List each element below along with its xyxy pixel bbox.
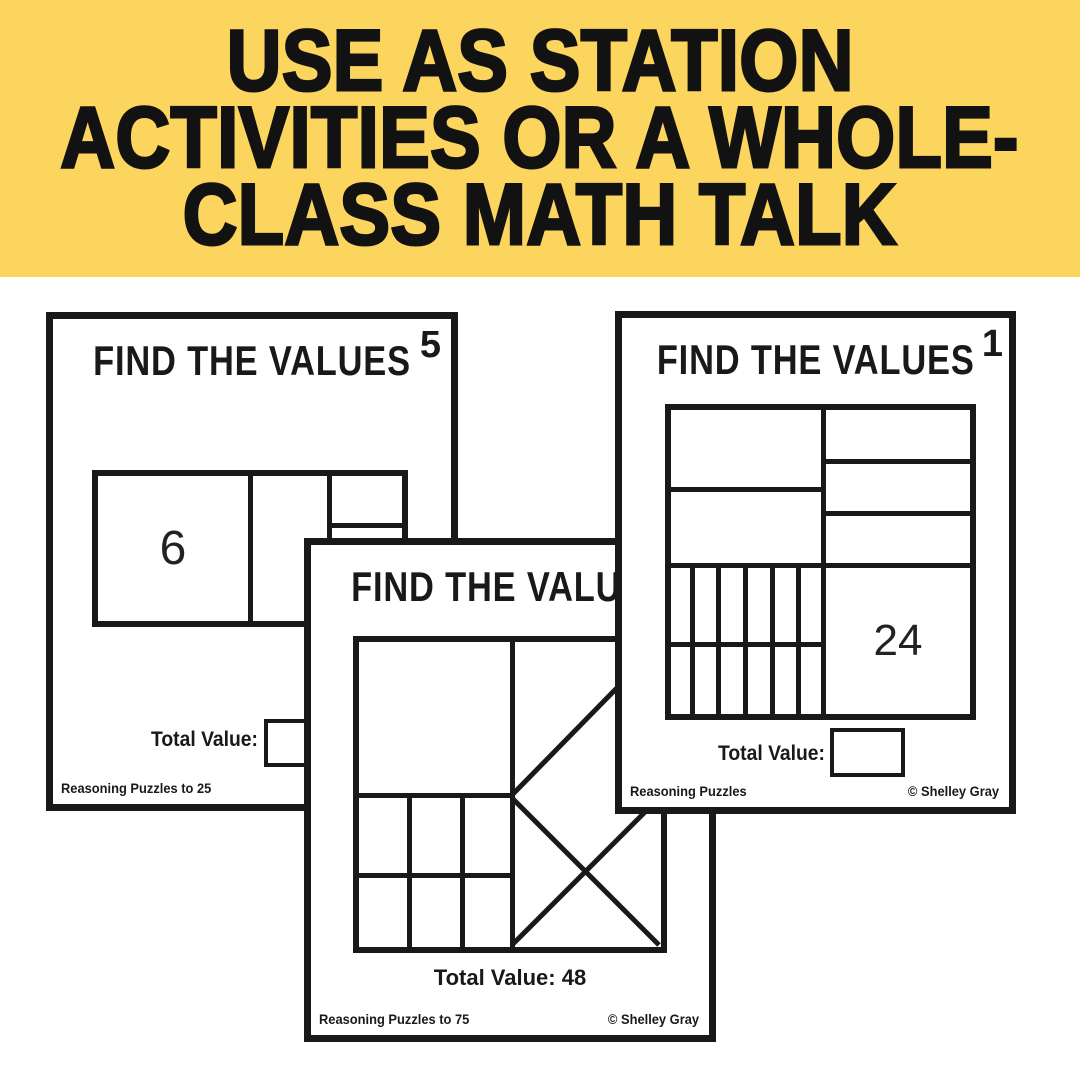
puzzle-line (690, 563, 695, 714)
banner-line-2: ACTIVITIES OR A WHOLE- (61, 100, 1019, 177)
puzzle-line (770, 563, 775, 714)
puzzle-line (821, 511, 970, 516)
footer-series: Reasoning Puzzles to 75 (319, 1011, 469, 1027)
total-value-label: Total Value: (69, 728, 258, 752)
puzzle-line (821, 459, 970, 464)
footer-copyright: © Shelley Gray (608, 1011, 699, 1027)
card-title: FIND THE VALUES (657, 336, 974, 384)
puzzle-line (716, 563, 721, 714)
footer-series: Reasoning Puzzles to 25 (61, 780, 211, 796)
card-number-badge: 1 (982, 323, 1003, 366)
puzzle-line (671, 487, 826, 492)
card-title: FIND THE VALUES (89, 337, 415, 385)
total-value-label: Total Value: (638, 742, 825, 766)
headline-banner: USE AS STATION ACTIVITIES OR A WHOLE- CL… (0, 0, 1080, 277)
puzzle-line (248, 476, 253, 621)
footer-copyright: © Shelley Gray (908, 783, 999, 799)
puzzle-card-1: FIND THE VALUES 1 24 Total Value: Reas (615, 311, 1016, 814)
puzzle-shape: 24 (665, 404, 976, 720)
puzzle-line (327, 523, 402, 528)
puzzle-line (796, 563, 801, 714)
total-value-label: Total Value: 48 (311, 965, 709, 991)
promo-graphic: USE AS STATION ACTIVITIES OR A WHOLE- CL… (0, 0, 1080, 1080)
puzzle-line (671, 642, 826, 647)
footer-series: Reasoning Puzzles (630, 783, 747, 799)
card-number-badge: 5 (420, 324, 441, 367)
banner-line-1: USE AS STATION (226, 23, 853, 100)
banner-line-3: CLASS MATH TALK (183, 177, 897, 254)
total-value-box (830, 728, 905, 777)
puzzle-line (743, 563, 748, 714)
cell-value: 24 (826, 568, 970, 714)
cell-value: 6 (98, 476, 248, 621)
